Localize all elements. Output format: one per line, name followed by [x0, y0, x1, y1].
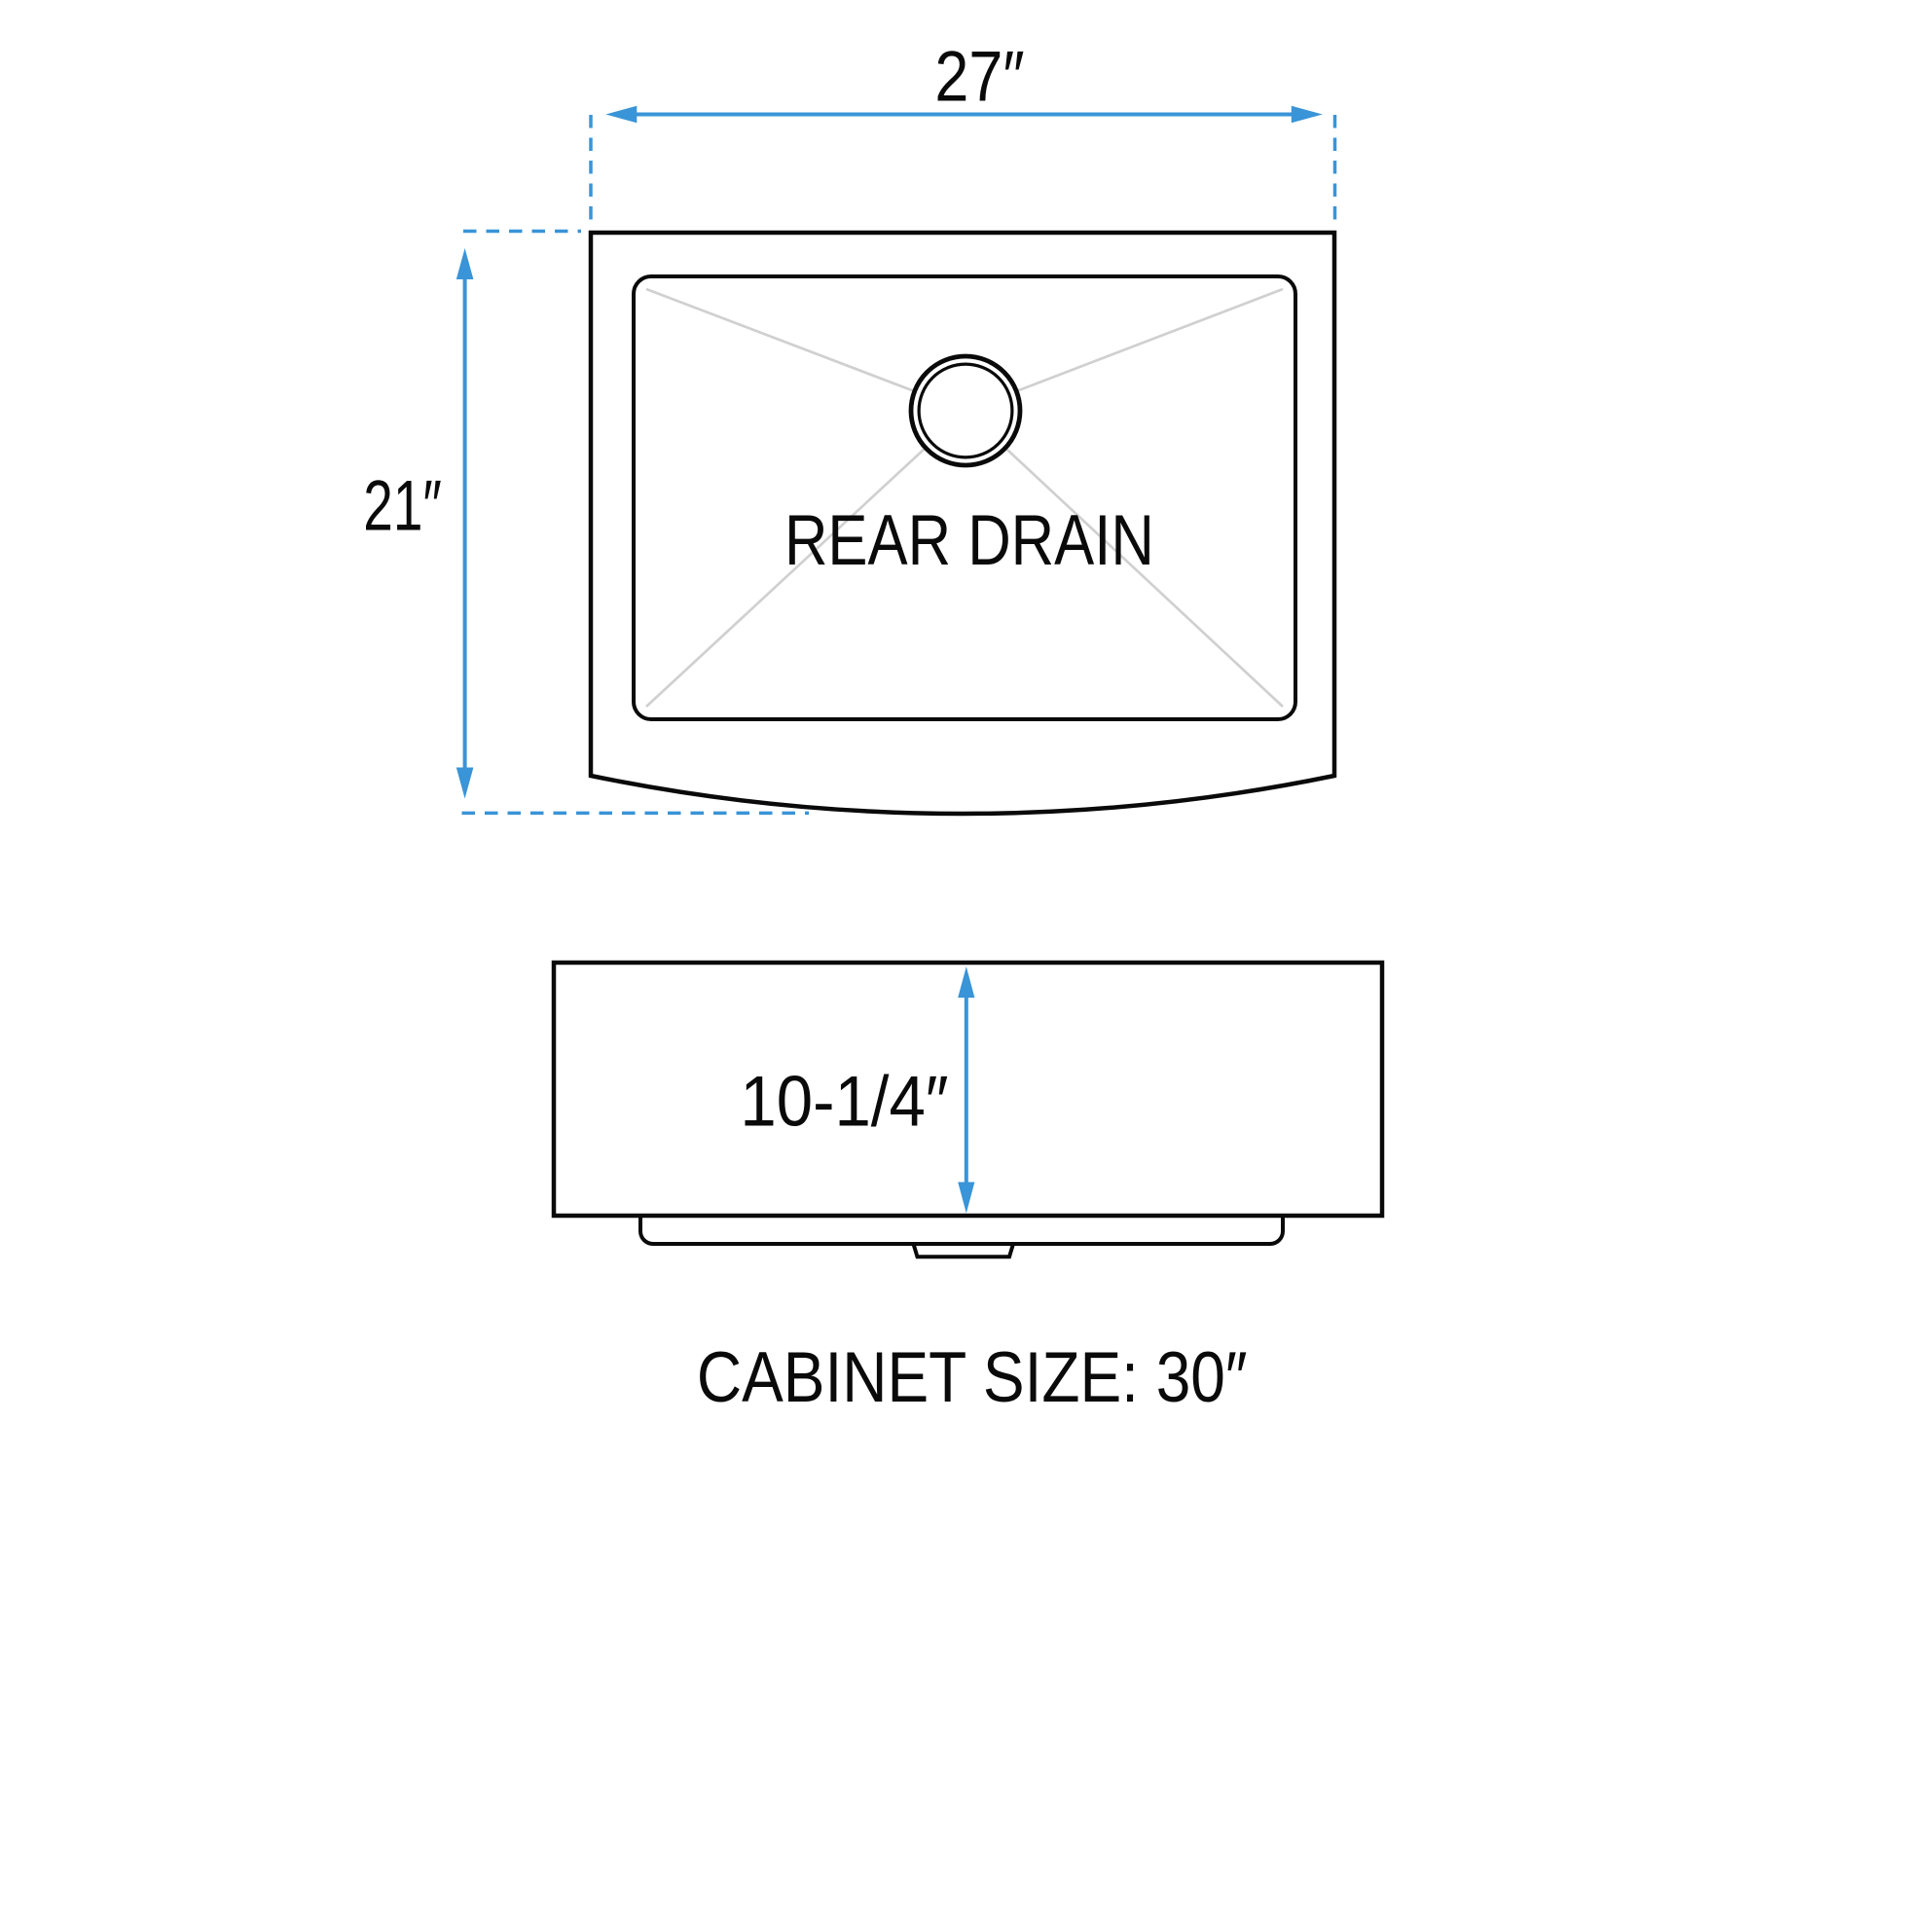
svg-text:CABINET SIZE: 30″: CABINET SIZE: 30″: [697, 1337, 1248, 1417]
svg-text:REAR DRAIN: REAR DRAIN: [784, 501, 1154, 580]
svg-text:21″: 21″: [363, 466, 442, 545]
svg-text:10-1/4″: 10-1/4″: [740, 1062, 948, 1141]
svg-text:27″: 27″: [934, 37, 1024, 116]
